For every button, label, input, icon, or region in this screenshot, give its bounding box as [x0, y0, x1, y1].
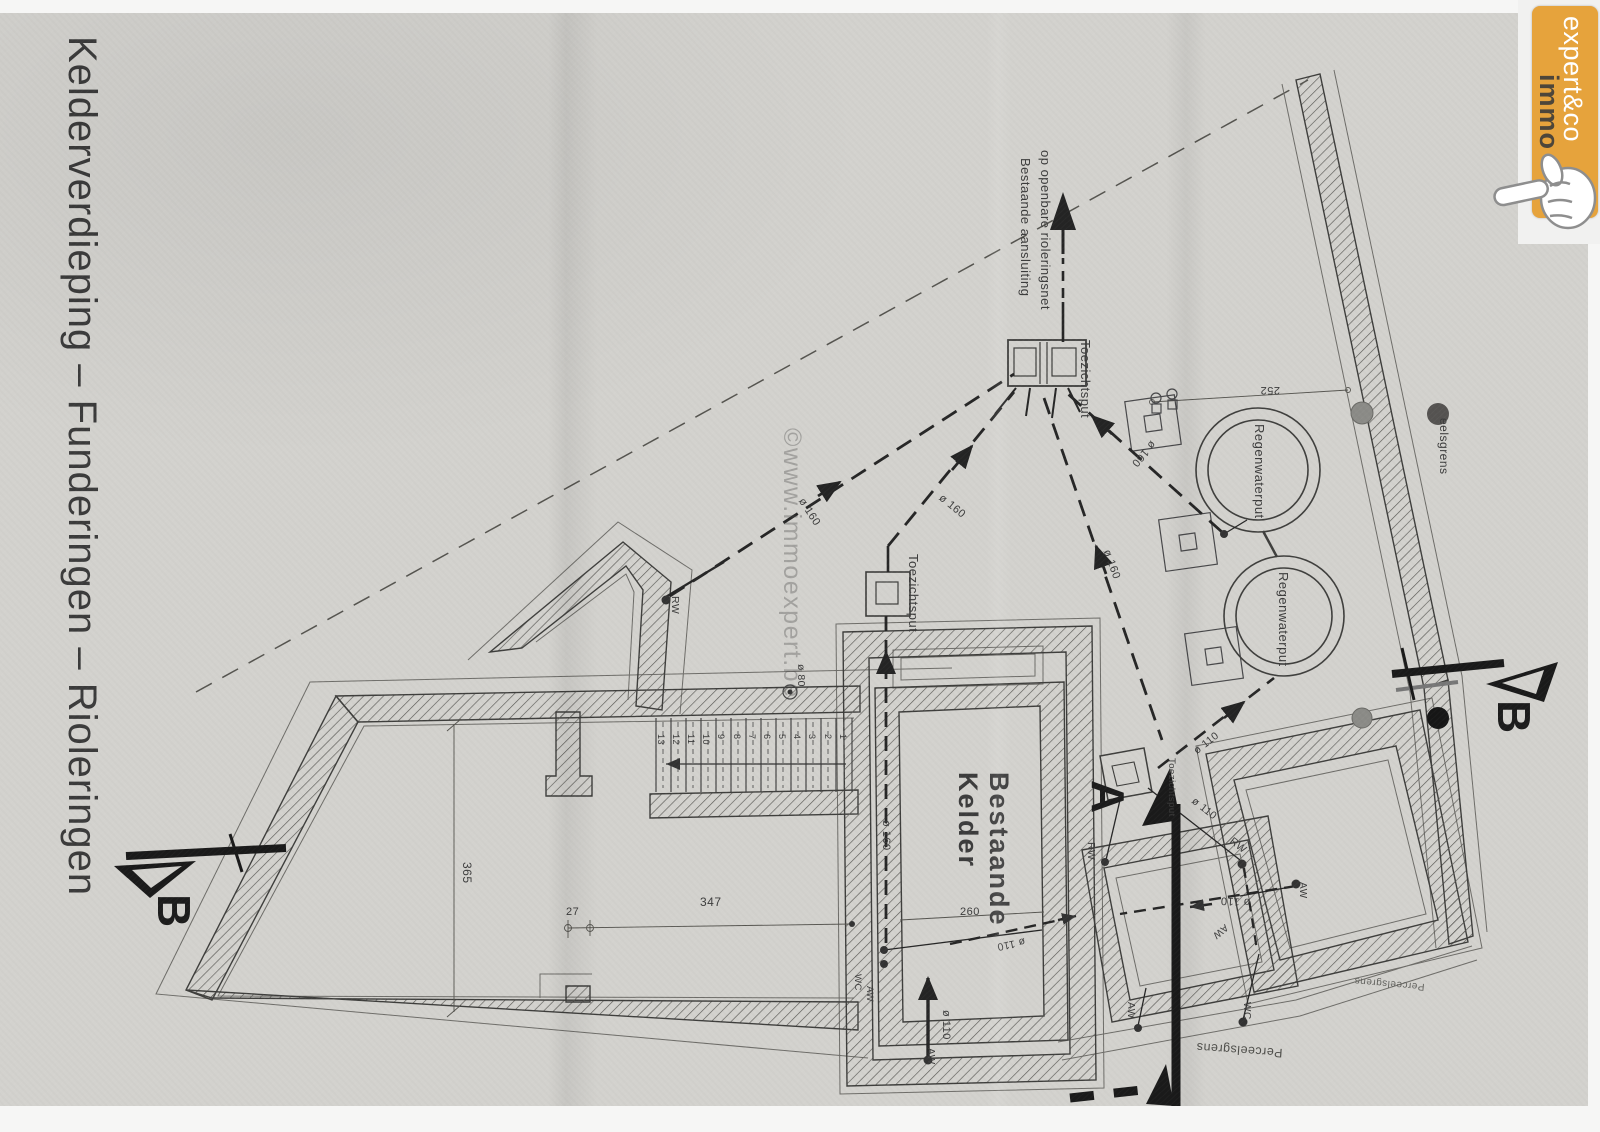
page-title: Kelderverdieping – Funderingen – Rioleri…: [59, 36, 104, 896]
staircase: [656, 718, 852, 792]
kelder-inner-wall: [875, 682, 1068, 1046]
main-sewer-arrow: [1050, 192, 1076, 230]
toezichtsput-small-box: [1100, 748, 1152, 800]
wall-stub-bottom: [566, 986, 590, 1002]
pointing-hand-icon: [1488, 146, 1600, 232]
bollard-dot: [1351, 402, 1373, 424]
boundary-wall-upper: [1296, 74, 1448, 688]
hatched-walls: [186, 74, 1473, 1086]
property-boundary-dashed-line: [196, 80, 1308, 692]
sewer-pipes: [664, 192, 1296, 1058]
wall-stair-hall: [650, 790, 858, 818]
wall-bottom: [186, 990, 858, 1030]
logo-word-expertco: expert&co: [1557, 16, 1588, 142]
regenwaterput-tanks: [1196, 408, 1344, 676]
wall-stub-top: [546, 712, 592, 796]
scan-margin-bottom: [0, 1106, 1600, 1132]
scanned-plan-page: Kelderverdieping – Funderingen – Rioleri…: [0, 0, 1600, 1132]
section-arrow-A-bottom: [1146, 1064, 1174, 1106]
wall-bay: [490, 542, 671, 710]
right-room-wall: [1206, 710, 1468, 992]
toezichtsput-middle-box: [866, 572, 910, 616]
bollard-dot: [1427, 403, 1449, 425]
watermark-text: ©www.immoexpert.be: [777, 428, 806, 699]
bollard-dot: [1427, 707, 1449, 729]
scan-margin-top: [0, 0, 1600, 13]
bollard-dot: [1352, 708, 1372, 728]
